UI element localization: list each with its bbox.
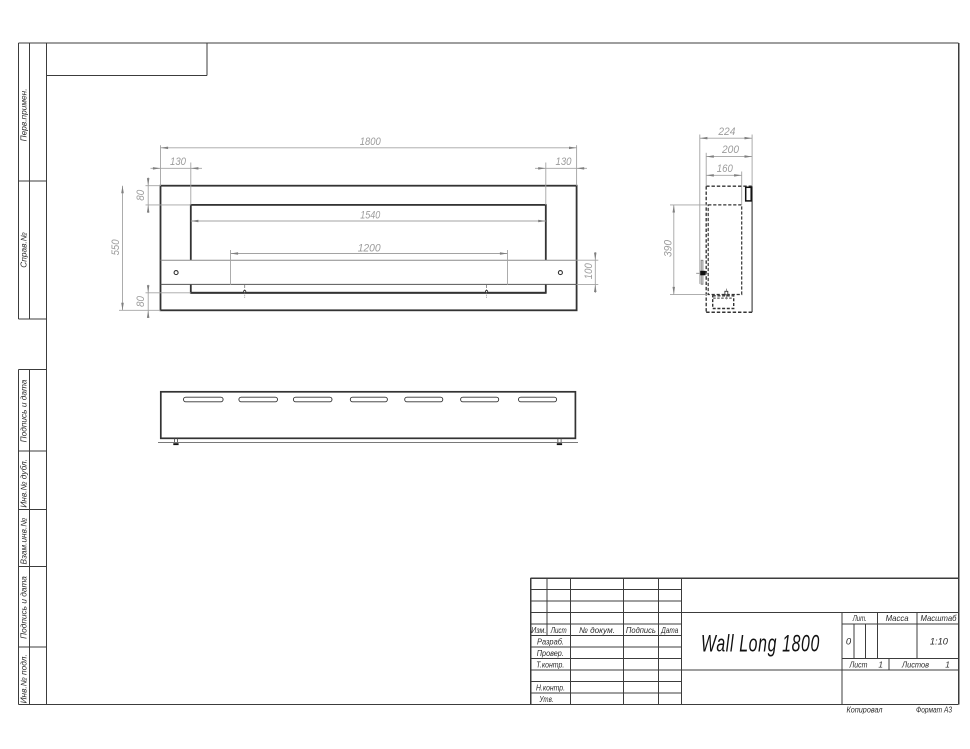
svg-text:Масштаб: Масштаб — [921, 613, 957, 623]
svg-text:Утв.: Утв. — [539, 694, 554, 704]
svg-text:160: 160 — [717, 163, 734, 175]
svg-text:Листов: Листов — [901, 659, 929, 669]
svg-text:80: 80 — [135, 295, 147, 307]
svg-text:0: 0 — [846, 637, 852, 648]
svg-text:1200: 1200 — [358, 242, 382, 254]
svg-text:Инв.№ подл.: Инв.№ подл. — [18, 654, 28, 703]
svg-text:Разраб.: Разраб. — [537, 636, 564, 646]
svg-text:130: 130 — [556, 156, 573, 168]
svg-text:390: 390 — [662, 239, 674, 257]
svg-text:Лит.: Лит. — [852, 613, 867, 623]
svg-text:Масса: Масса — [886, 613, 909, 623]
svg-text:1540: 1540 — [360, 209, 381, 221]
svg-text:Копировал: Копировал — [847, 706, 884, 715]
svg-text:Подпись: Подпись — [626, 625, 656, 635]
svg-text:100: 100 — [583, 262, 595, 279]
svg-text:130: 130 — [170, 156, 187, 168]
svg-text:№ докум.: № докум. — [579, 625, 615, 635]
svg-text:Лист: Лист — [849, 659, 868, 669]
svg-text:1: 1 — [878, 659, 883, 669]
svg-text:Перв.примен.: Перв.примен. — [18, 88, 28, 141]
svg-text:Лист: Лист — [550, 625, 567, 635]
svg-text:Подпись и дата: Подпись и дата — [18, 576, 28, 639]
svg-text:Т.контр.: Т.контр. — [536, 659, 564, 669]
svg-text:200: 200 — [721, 144, 740, 156]
svg-text:80: 80 — [135, 189, 147, 201]
svg-text:Инв.№ дубл.: Инв.№ дубл. — [18, 459, 28, 508]
svg-text:1:10: 1:10 — [930, 637, 949, 648]
svg-text:Формат А3: Формат А3 — [916, 706, 953, 715]
svg-text:Справ.№: Справ.№ — [18, 232, 28, 267]
svg-text:Изм.: Изм. — [531, 625, 546, 635]
svg-text:Взам.инв.№: Взам.инв.№ — [18, 518, 28, 565]
svg-text:Н.контр.: Н.контр. — [536, 682, 565, 692]
svg-text:224: 224 — [717, 126, 735, 138]
svg-text:550: 550 — [110, 239, 122, 256]
svg-text:1: 1 — [945, 659, 950, 669]
svg-text:Wall Long 1800: Wall Long 1800 — [701, 631, 820, 658]
svg-text:Провер.: Провер. — [537, 648, 564, 658]
svg-text:Дата: Дата — [661, 625, 679, 635]
svg-text:Подпись и дата: Подпись и дата — [18, 379, 28, 442]
svg-text:1800: 1800 — [360, 136, 382, 148]
